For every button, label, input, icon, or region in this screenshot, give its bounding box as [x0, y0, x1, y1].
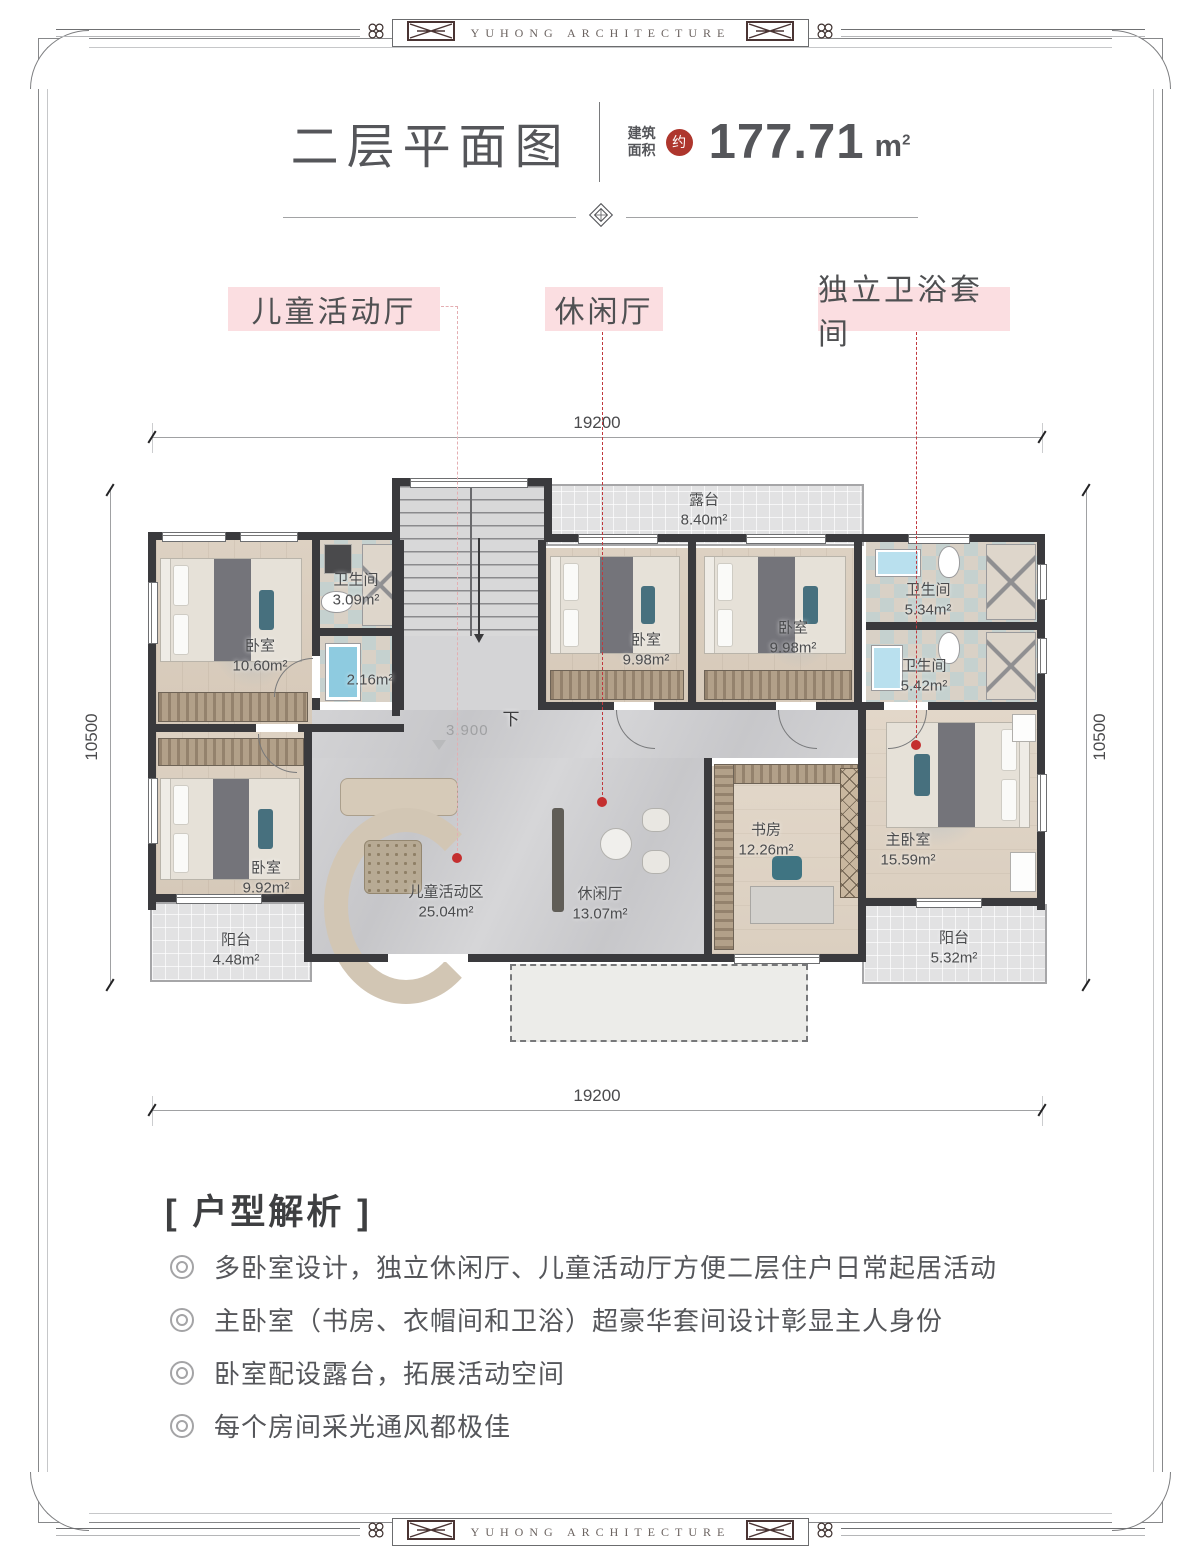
label-bedroom-tl: 卧室10.60m²: [232, 637, 287, 676]
label-balcony-left: 阳台4.48m²: [213, 931, 260, 970]
quatrefoil-icon: [366, 1520, 386, 1545]
bullet-ring-icon: [170, 1414, 194, 1438]
approx-badge: 约: [666, 129, 693, 156]
label-bath-small: 卫生间3.09m²: [333, 571, 380, 610]
brand-text: YUHONG ARCHITECTURE: [471, 1525, 731, 1540]
bath-counter: [324, 544, 352, 574]
band-rule: [841, 29, 1145, 37]
stair-rail: [470, 486, 472, 636]
leader-line: [457, 306, 458, 856]
window: [1037, 774, 1047, 832]
bullet-ring-icon: [170, 1361, 194, 1385]
label-bath-r2: 卫生间5.42m²: [901, 657, 948, 696]
knot-ornament-icon: [407, 1520, 455, 1545]
round-table: [600, 828, 632, 860]
window: [916, 898, 982, 908]
analysis-list: 多卧室设计，独立休闲厅、儿童活动厅方便二层住户日常起居活动 主卧室（书房、衣帽间…: [170, 1240, 997, 1452]
dimension-line-top: [152, 437, 1042, 438]
diamond-ornament-icon: [588, 202, 614, 233]
label-bedroom-bl: 卧室9.92m²: [243, 859, 290, 898]
label-children-activity: 儿童活动区25.04m²: [408, 883, 483, 922]
divider-rule: [626, 217, 919, 218]
quatrefoil-icon: [366, 21, 386, 46]
bullet-ring-icon: [170, 1255, 194, 1279]
label-master-bedroom: 主卧室15.59m²: [880, 831, 935, 870]
stair-direction-arrow: [478, 538, 480, 634]
dimension-value-top: 19200: [573, 413, 620, 433]
floor-plan-page: YUHONG ARCHITECTURE 二层平面图 建筑 面积 约 177.71…: [0, 0, 1201, 1561]
label-balcony-right: 阳台5.32m²: [931, 929, 978, 968]
desk: [750, 886, 834, 924]
dimension-line-bottom: [152, 1110, 1042, 1111]
analysis-item: 每个房间采光通风都极佳: [170, 1399, 997, 1452]
brand-cartouche: YUHONG ARCHITECTURE: [392, 1518, 810, 1546]
knot-ornament-icon: [407, 21, 455, 46]
dimension-line-left: [110, 490, 111, 985]
sink: [876, 550, 920, 576]
level-triangle-icon: [432, 740, 446, 750]
area-label: 建筑 面积: [628, 125, 656, 160]
stair-treads: [400, 486, 544, 636]
window: [734, 954, 820, 964]
stairs-down-label: 下: [503, 709, 520, 731]
leader-line: [441, 306, 458, 307]
sink: [872, 646, 902, 690]
tv-bench: [552, 808, 564, 912]
wardrobe: [550, 670, 684, 700]
level-annotation: 3.900: [446, 722, 489, 739]
band-rule: [56, 1528, 360, 1536]
dresser: [1010, 852, 1036, 892]
page-title: 二层平面图: [291, 107, 571, 177]
hall-corridor-floor: [312, 710, 858, 758]
shower: [986, 632, 1036, 700]
toilet: [938, 546, 960, 578]
dimension-value-left: 10500: [82, 713, 102, 760]
label-bedroom-m1: 卧室9.98m²: [623, 631, 670, 670]
armchair: [642, 808, 670, 832]
canopy-dashed-outline: [510, 964, 808, 1042]
nightstand: [1012, 714, 1036, 742]
title-block: 二层平面图 建筑 面积 约 177.71 m2: [0, 102, 1201, 182]
window: [1037, 638, 1047, 674]
desk-chair: [772, 856, 802, 880]
dimension-line-right: [1086, 490, 1087, 985]
band-rule: [56, 29, 360, 37]
leader-dot: [911, 740, 921, 750]
leader-dot: [597, 797, 607, 807]
label-leisure-hall: 休闲厅13.07m²: [572, 885, 627, 924]
label-study: 书房12.26m²: [738, 821, 793, 860]
leader-line: [602, 332, 603, 800]
window: [908, 534, 970, 544]
closet-strip: [714, 764, 858, 784]
title-underline: [283, 202, 918, 233]
bullet-ring-icon: [170, 1308, 194, 1332]
leader-dot: [452, 853, 462, 863]
brand-text: YUHONG ARCHITECTURE: [471, 26, 731, 41]
label-bedroom-m2: 卧室9.98m²: [770, 619, 817, 658]
label-terrace: 露台8.40m²: [681, 491, 728, 530]
analysis-item: 卧室配设露台，拓展活动空间: [170, 1346, 997, 1399]
bookshelf: [840, 768, 859, 898]
window: [240, 532, 298, 542]
window: [148, 778, 158, 844]
band-rule: [841, 1528, 1145, 1536]
dimension-value-right: 10500: [1090, 713, 1110, 760]
analysis-item: 主卧室（书房、衣帽间和卫浴）超豪华套间设计彰显主人身份: [170, 1293, 997, 1346]
area-unit: m2: [874, 128, 910, 170]
knot-ornament-icon: [746, 1520, 794, 1545]
window: [1037, 564, 1047, 600]
quatrefoil-icon: [815, 1520, 835, 1545]
callout-children-hall: 儿童活动厅: [228, 287, 440, 331]
window: [578, 534, 658, 544]
closet-strip: [714, 764, 734, 950]
area-group: 建筑 面积 约 177.71 m2: [628, 114, 911, 170]
analysis-heading: [ 户型解析 ]: [165, 1184, 372, 1235]
window: [148, 582, 158, 644]
label-closet-216: 2.16m²: [347, 670, 394, 690]
quatrefoil-icon: [815, 21, 835, 46]
brand-cartouche: YUHONG ARCHITECTURE: [392, 19, 810, 47]
window: [746, 534, 826, 544]
window: [162, 532, 226, 542]
stair-arrow-head: [474, 634, 484, 643]
analysis-item: 多卧室设计，独立休闲厅、儿童活动厅方便二层住户日常起居活动: [170, 1240, 997, 1293]
brand-band-bottom: YUHONG ARCHITECTURE: [56, 1517, 1145, 1547]
leader-line: [916, 332, 917, 743]
callout-leisure-hall: 休闲厅: [545, 287, 663, 331]
title-divider-bar: [599, 102, 600, 182]
brand-band-top: YUHONG ARCHITECTURE: [56, 18, 1145, 48]
knot-ornament-icon: [746, 21, 794, 46]
callout-bath-suite: 独立卫浴套间: [818, 287, 1010, 331]
area-value: 177.71: [709, 114, 865, 170]
shower: [986, 544, 1036, 620]
label-bath-r1: 卫生间5.34m²: [905, 581, 952, 620]
window: [410, 478, 528, 488]
wardrobe: [704, 670, 852, 700]
dimension-value-bottom: 19200: [573, 1086, 620, 1106]
divider-rule: [283, 217, 576, 218]
armchair: [642, 850, 670, 874]
